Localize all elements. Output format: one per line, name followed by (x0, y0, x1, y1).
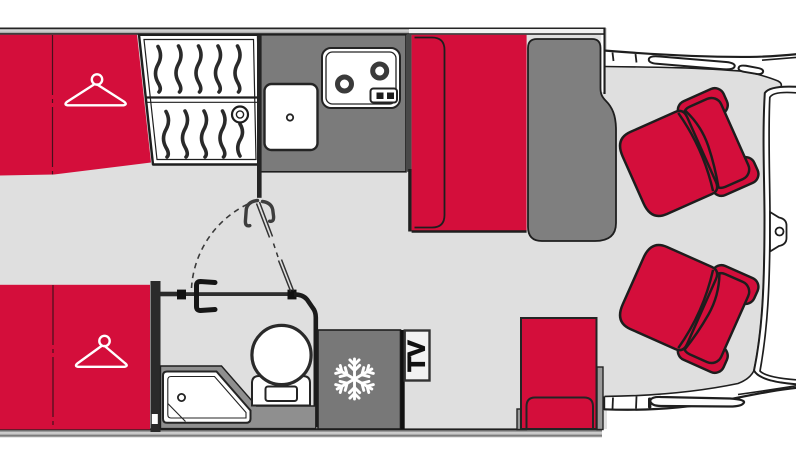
svg-text:TV: TV (404, 340, 431, 372)
